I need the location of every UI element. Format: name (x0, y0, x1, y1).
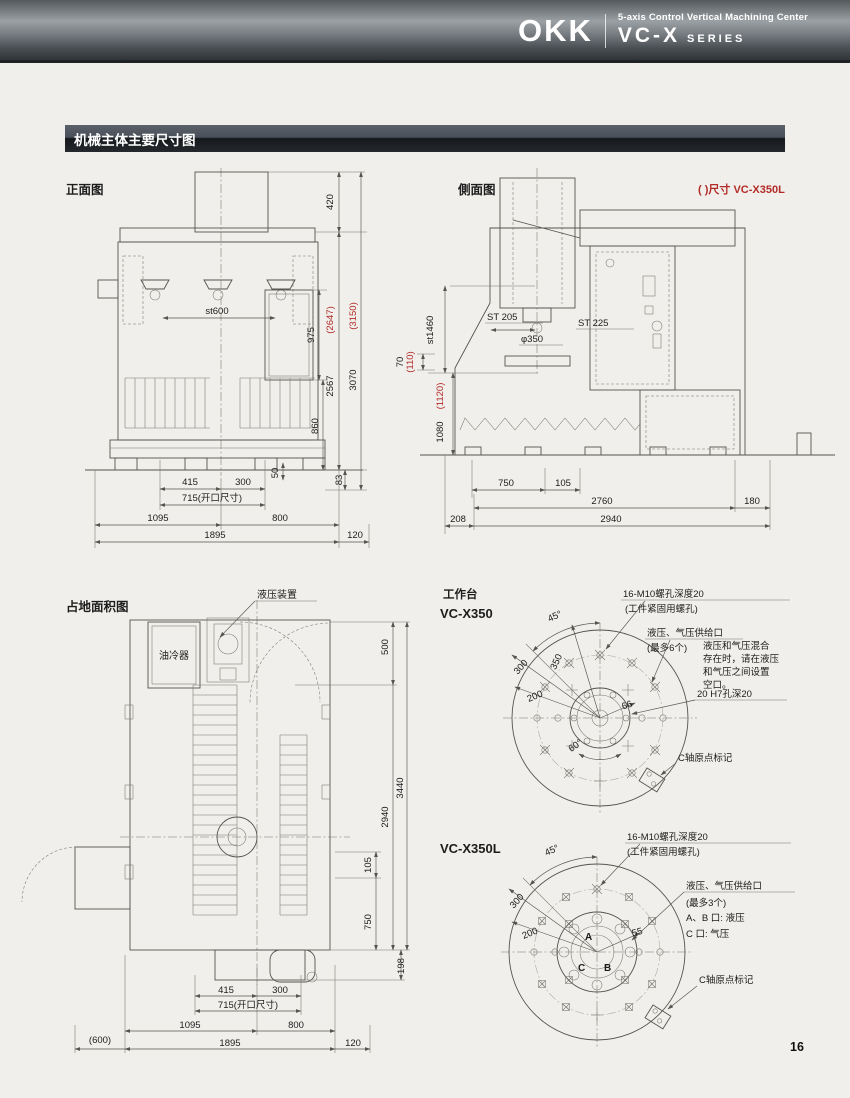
dim-110: (110) (405, 351, 416, 372)
x350l-c-origin: C轴原点标记 (699, 974, 754, 986)
side-dimensions: st1460 70 (110) (1120) 1080 ST 205 ST 22… (395, 286, 770, 534)
dim-415f: 415 (218, 985, 234, 996)
brand-block: OKK 5-axis Control Vertical Machining Ce… (518, 13, 808, 49)
model-x350: VC-X350 (440, 606, 493, 621)
dim-180: 180 (744, 496, 760, 507)
brand-text: 5-axis Control Vertical Machining Center… (618, 13, 808, 48)
header-divider (605, 14, 606, 48)
dim-500: 500 (380, 639, 391, 655)
dim-45deg-l: 45° (543, 843, 561, 859)
x350-mix-note-1: 液压和气压混合 (703, 640, 770, 652)
dim-300f: 300 (272, 985, 288, 996)
floor-space-drawing: 油冷器 液压装置 500 (65, 585, 425, 1075)
side-view-drawing: st1460 70 (110) (1120) 1080 ST 205 ST 22… (395, 168, 850, 560)
dim-800f: 800 (288, 1020, 304, 1031)
series-name: VC-X (618, 24, 680, 48)
x350l-supply3: A、B 口: 液压 (686, 912, 745, 924)
header-series: VC-X SERIES (618, 24, 808, 48)
port-b-label: B (604, 963, 611, 974)
dim-60deg: 60° (567, 737, 585, 754)
dim-105: 105 (555, 478, 571, 489)
dim-198: 198 (396, 958, 407, 974)
x350-mix-note-3: 和气压之间设置 (703, 666, 770, 678)
dim-2760: 2760 (591, 496, 612, 507)
label-st225: ST 225 (578, 318, 608, 329)
page-header: OKK 5-axis Control Vertical Machining Ce… (0, 0, 850, 63)
dim-300l: 300 (508, 892, 527, 911)
dim-2940f: 2940 (380, 806, 391, 827)
dim-1095: 1095 (147, 513, 168, 524)
floor-outline: 油冷器 (22, 600, 350, 985)
dim-3440: 3440 (395, 777, 406, 798)
dim-3150: (3150) (348, 302, 359, 329)
dim-1095f: 1095 (179, 1020, 200, 1031)
front-machine-outline (85, 168, 363, 476)
dim-1120: (1120) (435, 383, 446, 410)
x350-bolt-note2: (工件紧固用螺孔) (625, 603, 698, 615)
dim-83: 83 (334, 475, 345, 486)
dim-45deg: 45° (546, 609, 564, 625)
dim-200t: 200 (526, 689, 545, 705)
port-c-label: C (578, 963, 585, 974)
dim-415: 415 (182, 477, 198, 488)
x350-mix-note-2: 存在时，请在液压 (703, 653, 780, 665)
dim-750f: 750 (363, 914, 374, 930)
dim-715: 715(开口尺寸) (182, 492, 242, 504)
series-suffix: SERIES (687, 33, 745, 46)
dim-420: 420 (325, 194, 336, 210)
section-title: 机械主体主要尺寸图 (74, 129, 196, 149)
x350l-supply2: (最多3个) (686, 897, 726, 909)
dim-975: 975 (306, 327, 317, 343)
dim-st600: st600 (205, 306, 228, 317)
label-st205: ST 205 (487, 312, 517, 323)
dim-300: 300 (235, 477, 251, 488)
dim-120f: 120 (345, 1038, 361, 1049)
dim-1895f: 1895 (219, 1038, 240, 1049)
hydraulic-label: 液压装置 (257, 588, 297, 601)
dim-1895: 1895 (204, 530, 225, 541)
x350-supply2: (最多6个) (647, 642, 687, 654)
worktable-x350-drawing: 工作台 VC-X350 45° 300 350 (435, 585, 850, 830)
dim-715f: 715(开口尺寸) (218, 999, 278, 1011)
okk-logo: OKK (518, 13, 593, 49)
dim-2567: 2567 (325, 375, 336, 396)
dim-55: 55 (631, 926, 644, 939)
dim-350t: 350 (548, 652, 565, 671)
x350-supply1: 液压、气压供给口 (647, 627, 723, 639)
dim-120: 120 (347, 530, 363, 541)
dim-50: 50 (270, 468, 281, 479)
dim-300t: 300 (512, 658, 531, 677)
dim-208: 208 (450, 514, 466, 525)
x350-c-origin: C轴原点标记 (678, 752, 733, 764)
dim-860: 860 (310, 418, 321, 434)
x350l-supply1: 液压、气压供给口 (686, 880, 762, 892)
worktable-x350l-drawing: VC-X350L A B C 45° (435, 830, 850, 1098)
dim-800: 800 (272, 513, 288, 524)
header-subtitle: 5-axis Control Vertical Machining Center (618, 13, 808, 24)
dim-2940: 2940 (600, 514, 621, 525)
dim-200l: 200 (521, 926, 540, 942)
dim-st1460: st1460 (425, 316, 436, 345)
x350l-supply4: C 口: 气压 (686, 928, 730, 940)
model-x350l: VC-X350L (440, 841, 501, 856)
x350-bolt-note1: 16-M10螺孔深度20 (623, 588, 704, 600)
dim-600: (600) (89, 1035, 111, 1046)
section-title-bar: 机械主体主要尺寸图 (65, 125, 785, 152)
dim-750: 750 (498, 478, 514, 489)
dim-3070: 3070 (348, 369, 359, 390)
x350-hole20: 20 H7孔深20 (697, 689, 752, 700)
floor-dimensions: 500 2940 3440 105 750 198 415 300 715(开口… (75, 622, 410, 1053)
x350l-bolt-note1: 16-M10螺孔深度20 (627, 831, 708, 843)
side-machine-outline (420, 168, 835, 455)
dim-66: 66 (620, 699, 634, 713)
front-view-drawing: st600 420 (2647) 2567 (3150) 3070 975 86… (65, 168, 385, 560)
catalog-page: OKK 5-axis Control Vertical Machining Ce… (0, 0, 850, 1098)
worktable-label: 工作台 (443, 587, 478, 601)
dim-1080: 1080 (435, 421, 446, 442)
floor-callouts: 液压装置 (220, 588, 317, 637)
dim-105f: 105 (363, 857, 374, 873)
label-dia350: φ350 (521, 334, 543, 345)
x350l-bolt-note2: (工件紧固用螺孔) (627, 846, 700, 858)
dim-2647: (2647) (325, 306, 336, 333)
oil-cooler-label: 油冷器 (159, 649, 189, 662)
